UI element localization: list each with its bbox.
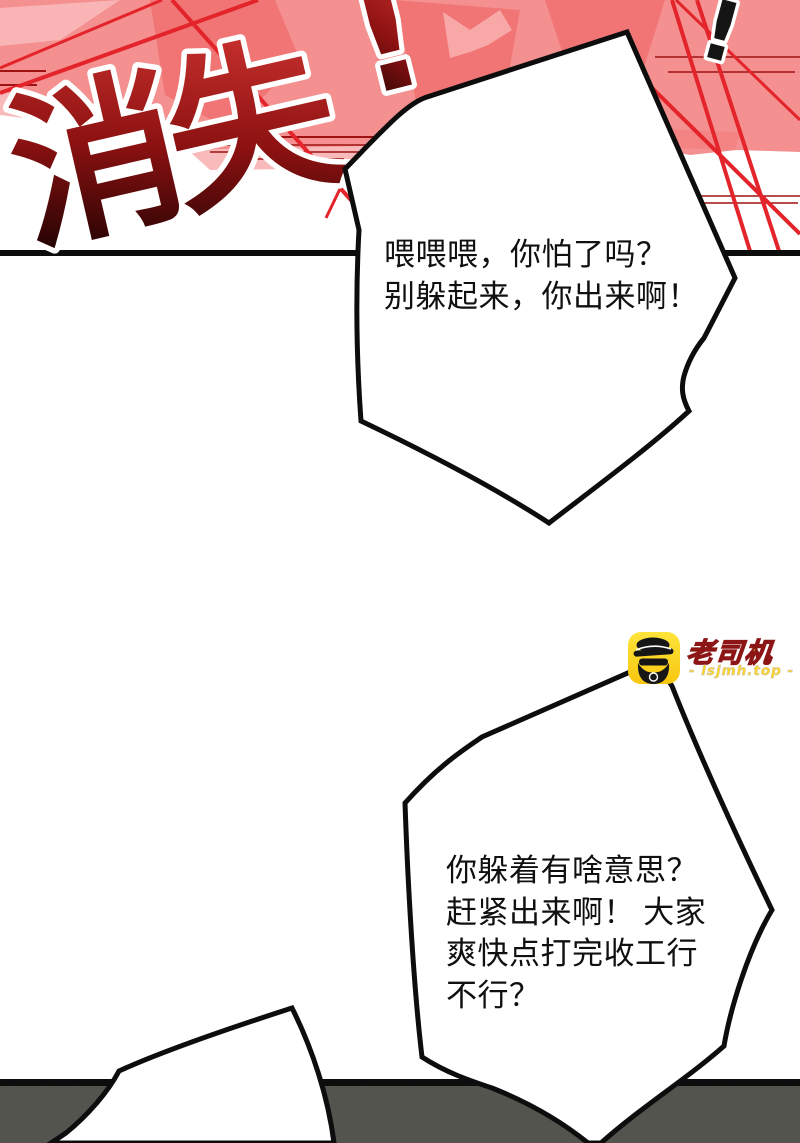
watermark-site: - lsjmh.top - bbox=[689, 663, 794, 679]
bubble2-line2: 赶紧出来啊！ 大家 bbox=[446, 897, 706, 930]
speech-bubble-3 bbox=[51, 1008, 334, 1143]
comic-page: 消失 ! ! 喂喂喂，你怕了吗？ 别躲起来，你出来啊！ 你躲着有啥意思？ 赶紧出… bbox=[0, 0, 800, 1143]
bubble2-line4: 不行？ bbox=[446, 980, 541, 1013]
bubble1-line2: 别躲起来，你出来啊！ bbox=[384, 281, 699, 314]
comic-artwork: 消失 ! ! bbox=[0, 0, 800, 1143]
bubble2-line3: 爽快点打完收工行 bbox=[446, 938, 698, 971]
bubble2-line1: 你躲着有啥意思？ bbox=[446, 855, 698, 888]
bubble1-line1: 喂喂喂，你怕了吗？ bbox=[384, 239, 668, 272]
watermark-logo-icon bbox=[628, 632, 680, 684]
